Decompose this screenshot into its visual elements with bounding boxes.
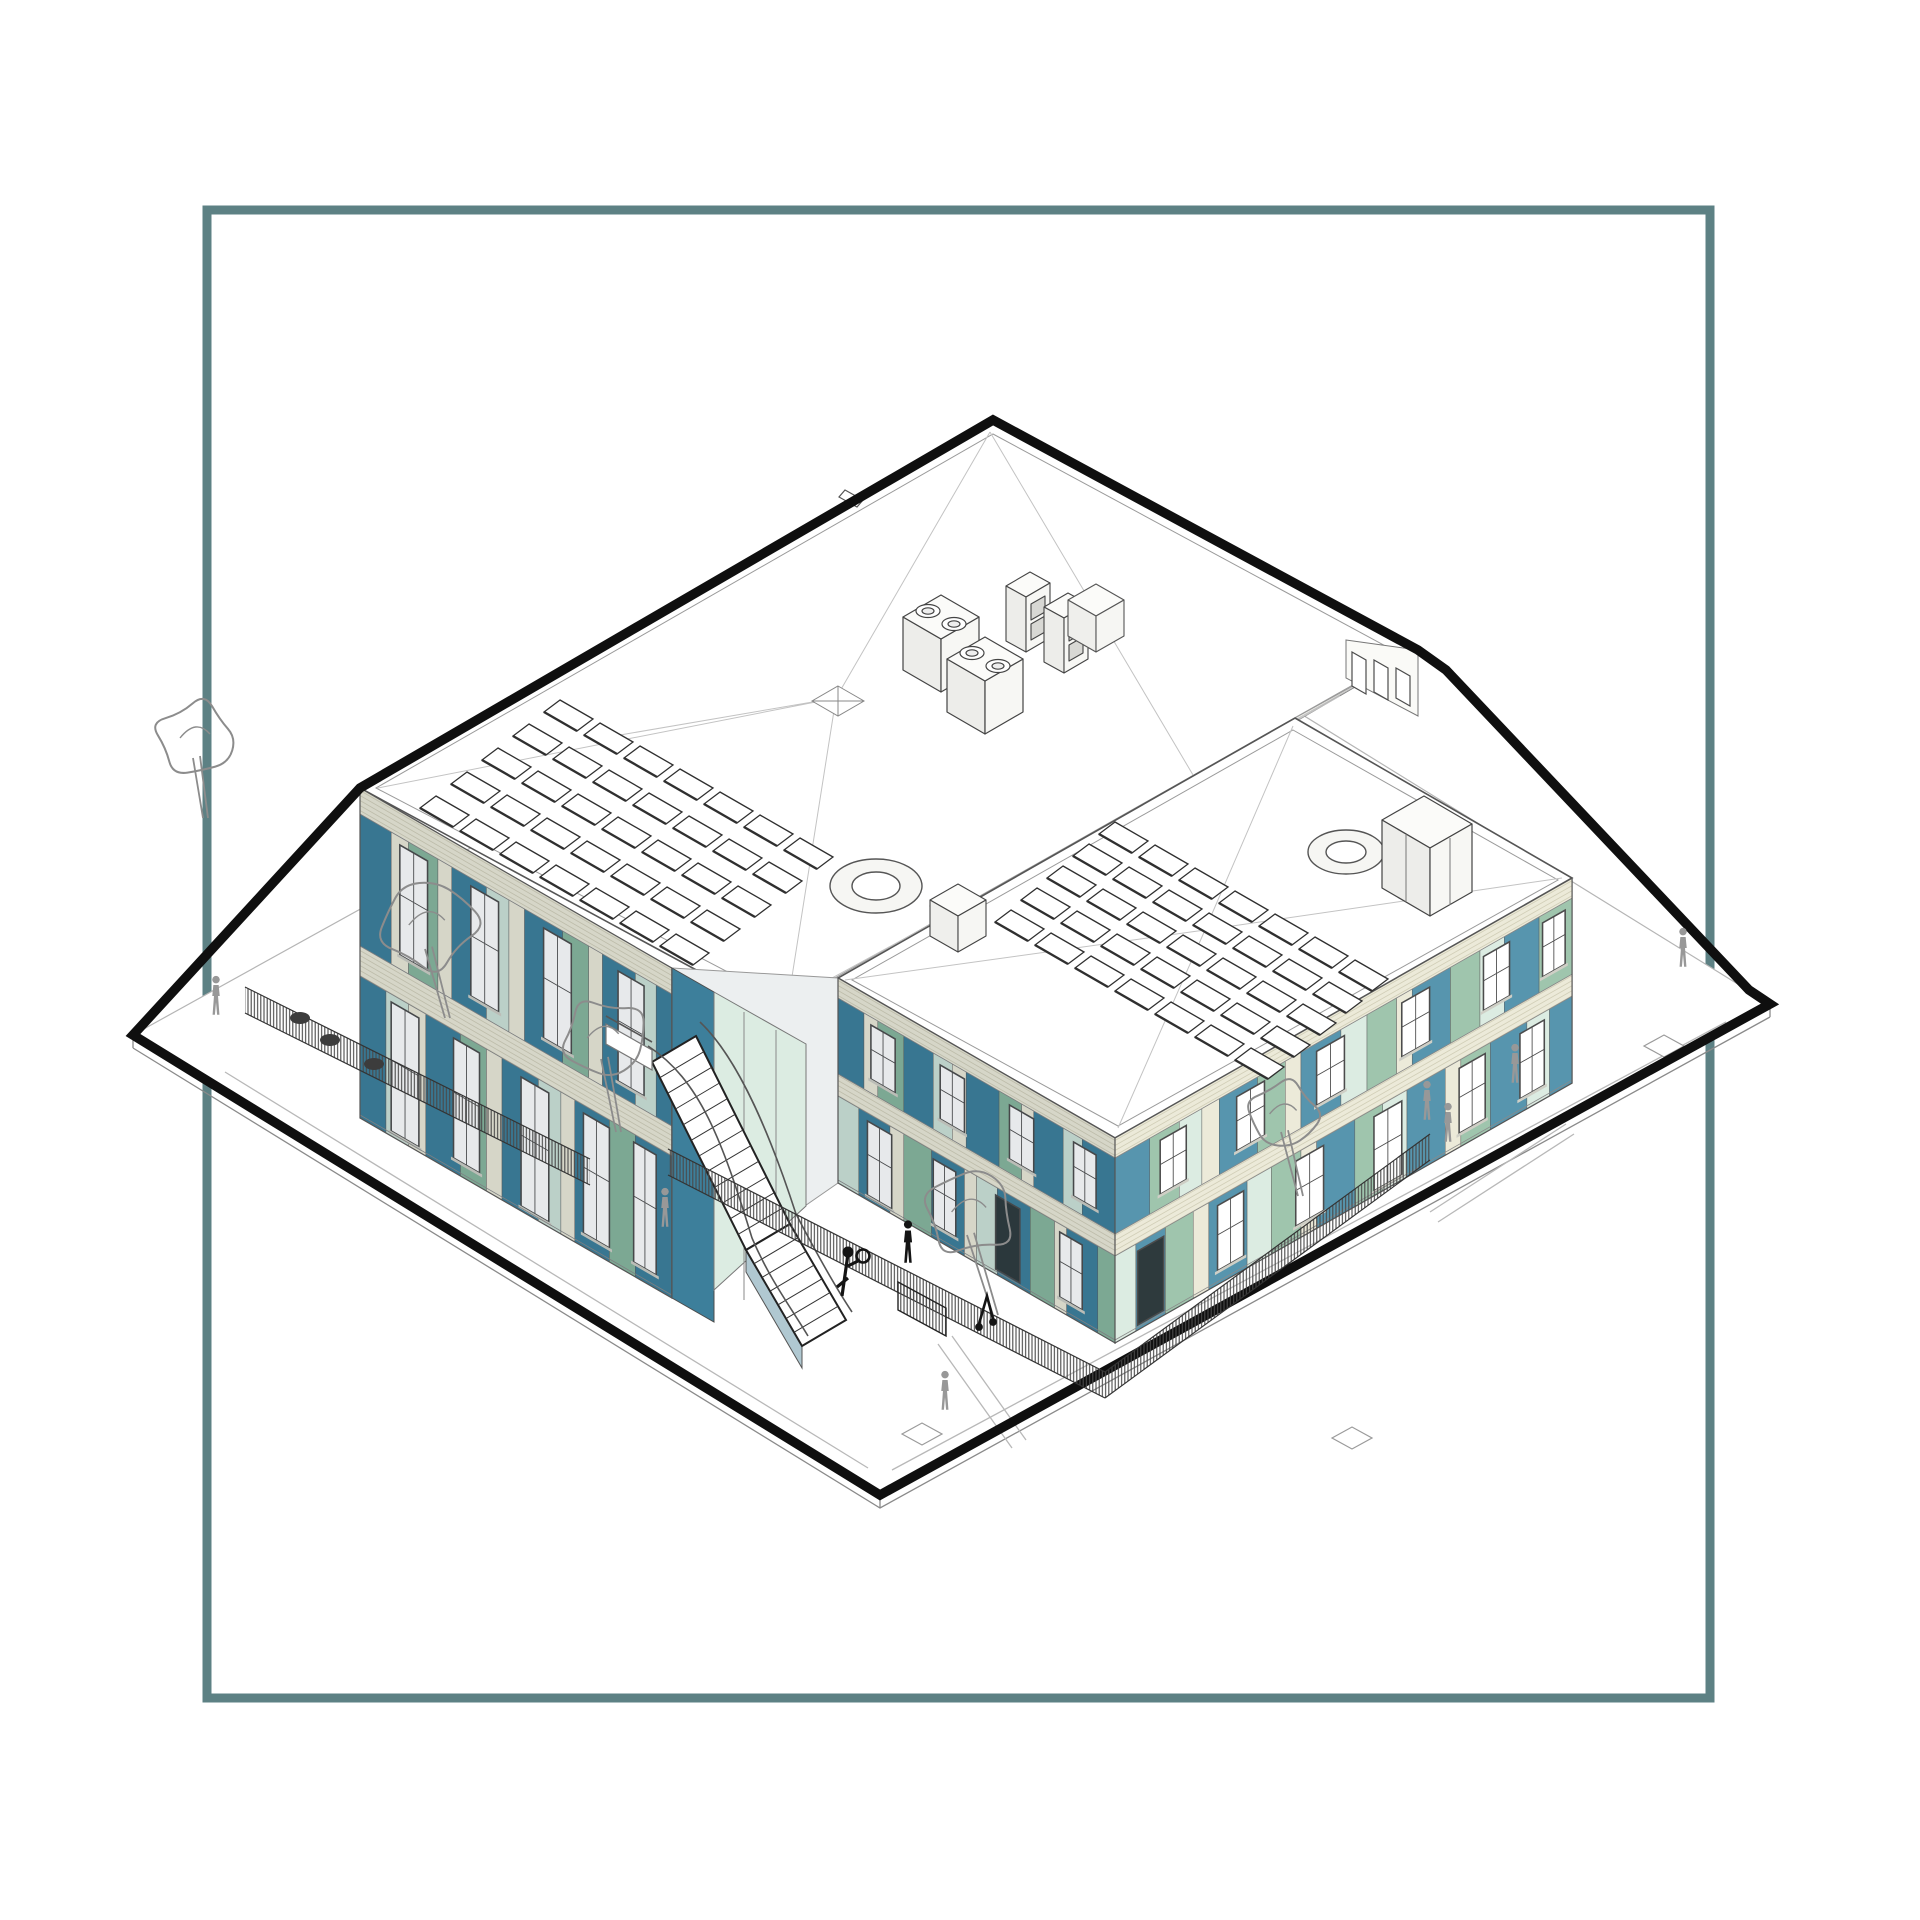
planter — [320, 1034, 340, 1046]
planter — [290, 1012, 310, 1024]
facade-door — [1138, 1236, 1164, 1325]
drawing-sheet — [0, 0, 1920, 1920]
axonometric-building-diagram — [0, 0, 1920, 1920]
planter — [364, 1058, 384, 1070]
rooftop-panel-unit — [1006, 572, 1050, 652]
